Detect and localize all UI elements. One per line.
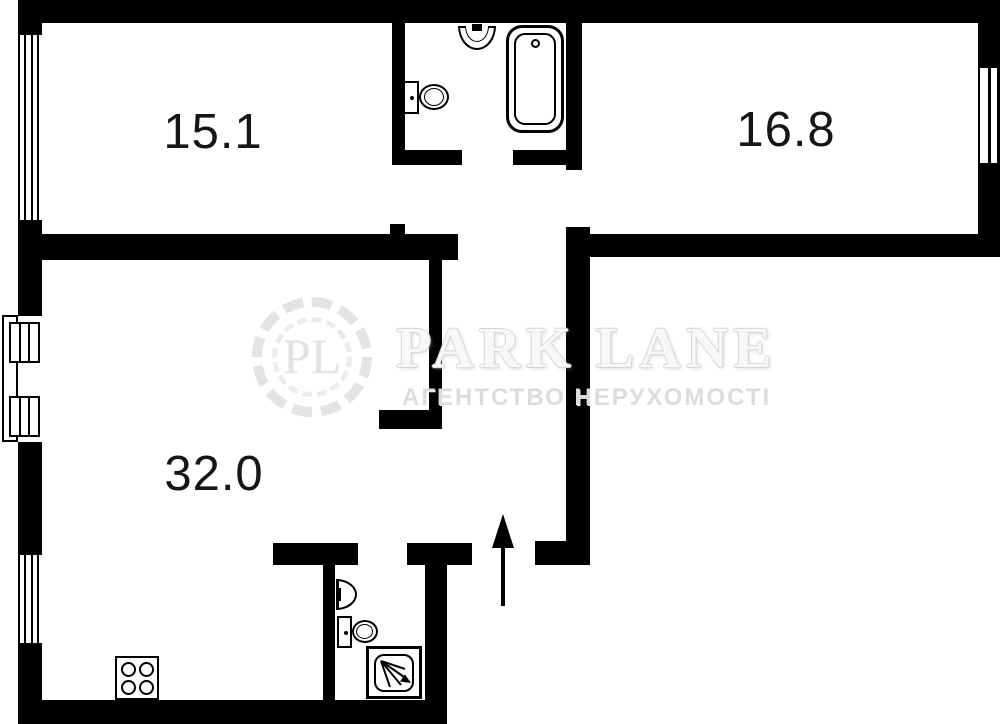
wall-left-3: [18, 442, 42, 555]
toilet-tank-icon: [403, 81, 419, 114]
wall-main-horizontal: [18, 234, 458, 260]
wall-corridor-right-foot: [535, 541, 590, 565]
toilet-tank-icon: [337, 616, 352, 648]
room-area-label: 32.0: [164, 446, 263, 502]
laurel-wreath-icon: [252, 297, 372, 417]
wall-corridor-left: [429, 260, 442, 410]
room-area-label: 16.8: [736, 102, 835, 158]
toilet-bowl-inner: [356, 624, 373, 639]
stove-icon: [115, 656, 159, 700]
wall-shower-room-left: [323, 565, 335, 702]
bathtub-drain: [531, 39, 540, 48]
toilet-bowl-inner: [424, 88, 444, 106]
wall-top: [18, 0, 1000, 23]
wall-corridor-right: [566, 227, 590, 565]
wall-right-upper: [978, 23, 1000, 68]
shower-spray-icon: [374, 654, 414, 692]
wall-shower-room-top-right: [407, 543, 472, 565]
wall-shower-room-right: [425, 565, 447, 724]
watermark-monogram: PL: [283, 327, 341, 385]
wall-room168-left: [566, 23, 582, 170]
wall-bathroom-bottom-left: [392, 150, 462, 165]
window: [978, 68, 1000, 163]
wall-stub-room151-door: [390, 224, 405, 234]
wall-room168-bottom: [585, 234, 1000, 257]
wall-bottom: [18, 700, 447, 724]
faucet-icon: [472, 24, 482, 31]
wall-left-1: [18, 23, 42, 35]
faucet-icon: [336, 588, 341, 601]
room-area-label: 15.1: [163, 104, 262, 160]
window: [18, 35, 39, 220]
window: [18, 555, 39, 643]
laurel-wreath-inner: [272, 317, 352, 397]
wall-shower-room-top-left: [273, 543, 358, 565]
floor-plan: 15.1 16.8 32.0 PL PARK LANE АГЕНТСТВО НЕ…: [0, 0, 1000, 724]
wall-corridor-left-foot: [379, 410, 442, 429]
